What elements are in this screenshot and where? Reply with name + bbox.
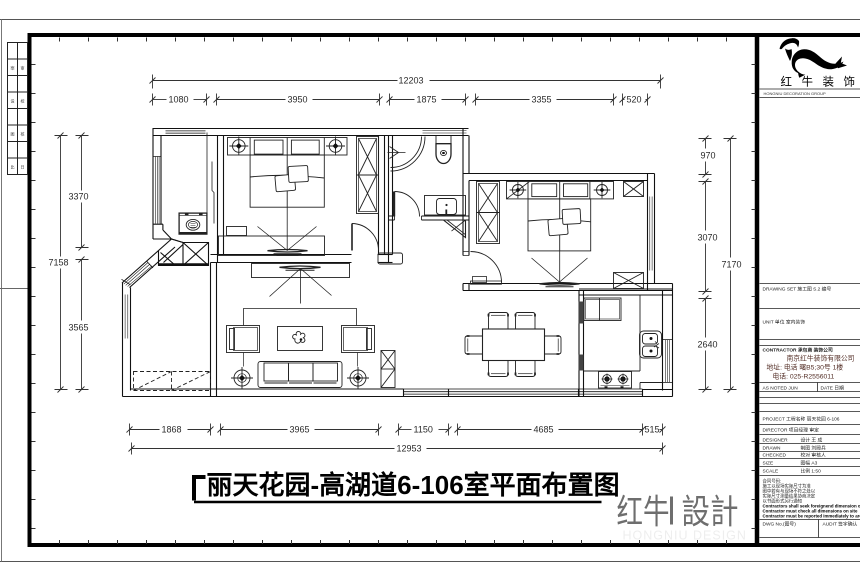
svg-text:12953: 12953 <box>397 444 422 454</box>
svg-text:比: 比 <box>11 164 15 170</box>
svg-text:4685: 4685 <box>534 425 554 435</box>
svg-text:1080: 1080 <box>169 95 189 105</box>
svg-text:520: 520 <box>627 95 642 105</box>
svg-text:12203: 12203 <box>399 76 424 86</box>
svg-text:DRAWING SET 施工图 S.2 编号: DRAWING SET 施工图 S.2 编号 <box>763 286 832 293</box>
svg-text:核: 核 <box>21 131 25 137</box>
svg-text:日: 日 <box>21 165 25 170</box>
svg-text:3965: 3965 <box>290 425 310 435</box>
svg-text:丽天花园-高湖道6-106室平面布置图: 丽天花园-高湖道6-106室平面布置图 <box>207 470 620 500</box>
svg-text:1875: 1875 <box>417 95 437 105</box>
svg-text:DIRECTOR 项目经理 审定: DIRECTOR 项目经理 审定 <box>763 427 820 434</box>
svg-text:SCALE: SCALE <box>763 469 779 475</box>
svg-text:7158: 7158 <box>49 258 69 268</box>
svg-text:案: 案 <box>11 65 15 71</box>
svg-text:电话: 025-R2556011: 电话: 025-R2556011 <box>773 372 835 381</box>
svg-text:970: 970 <box>701 151 716 161</box>
svg-text:3370: 3370 <box>69 192 89 202</box>
svg-text:515: 515 <box>645 425 660 435</box>
svg-text:7170: 7170 <box>722 260 742 270</box>
svg-text:地址: 电话 曙B5;30号 1楼: 地址: 电话 曙B5;30号 1楼 <box>767 363 844 372</box>
svg-text:3565: 3565 <box>69 323 89 333</box>
svg-text:3355: 3355 <box>532 95 552 105</box>
svg-text:设计 王 成: 设计 王 成 <box>801 437 823 444</box>
svg-text:红牛: 红牛 <box>617 494 670 532</box>
svg-text:1868: 1868 <box>162 425 182 435</box>
svg-text:审: 审 <box>21 65 25 71</box>
svg-text:图: 图 <box>11 131 15 137</box>
svg-text:设: 设 <box>11 98 15 104</box>
svg-text:1150: 1150 <box>414 425 433 435</box>
svg-text:HONGNIU DESIGN: HONGNIU DESIGN <box>623 529 747 543</box>
svg-text:2640: 2640 <box>698 340 718 350</box>
svg-text:DWG No.(图号): DWG No.(图号) <box>763 522 797 528</box>
svg-text:校: 校 <box>21 98 25 104</box>
svg-text:設計: 設計 <box>682 494 739 532</box>
svg-text:3950: 3950 <box>288 95 308 105</box>
svg-text:SIZE: SIZE <box>763 461 774 467</box>
svg-text:南京红牛装饰有限公司: 南京红牛装饰有限公司 <box>787 354 855 363</box>
svg-text:DRAWN: DRAWN <box>763 446 781 452</box>
svg-text:校对 审核人: 校对 审核人 <box>801 452 827 459</box>
svg-text:AS NOTED JUN: AS NOTED JUN <box>763 386 799 392</box>
svg-text:DESIGNER: DESIGNER <box>763 438 789 444</box>
svg-text:Contractor must be reported im: Contractor must be reported immediately … <box>763 514 860 519</box>
svg-text:UNIT 单位 室内装饰: UNIT 单位 室内装饰 <box>763 319 806 326</box>
svg-text:3070: 3070 <box>698 233 718 243</box>
svg-text:DATE 日期: DATE 日期 <box>821 386 845 392</box>
svg-text:比例 1:50: 比例 1:50 <box>801 468 822 475</box>
svg-text:图幅 A3: 图幅 A3 <box>801 460 818 467</box>
svg-text:红牛装饰: 红牛装饰 <box>781 75 860 89</box>
svg-text:HONGNIU DECORATION GROUP: HONGNIU DECORATION GROUP <box>764 91 826 96</box>
svg-text:PROJECT 工程名称 丽天花园 6-106: PROJECT 工程名称 丽天花园 6-106 <box>763 416 840 423</box>
svg-text:AUDIT 签字确认: AUDIT 签字确认 <box>823 521 858 528</box>
svg-text:CHECKED: CHECKED <box>763 453 787 459</box>
svg-text:制图 刘殿兵: 制图 刘殿兵 <box>801 445 827 452</box>
svg-text:CONTRACTOR 承包商 装饰公司: CONTRACTOR 承包商 装饰公司 <box>763 347 833 354</box>
